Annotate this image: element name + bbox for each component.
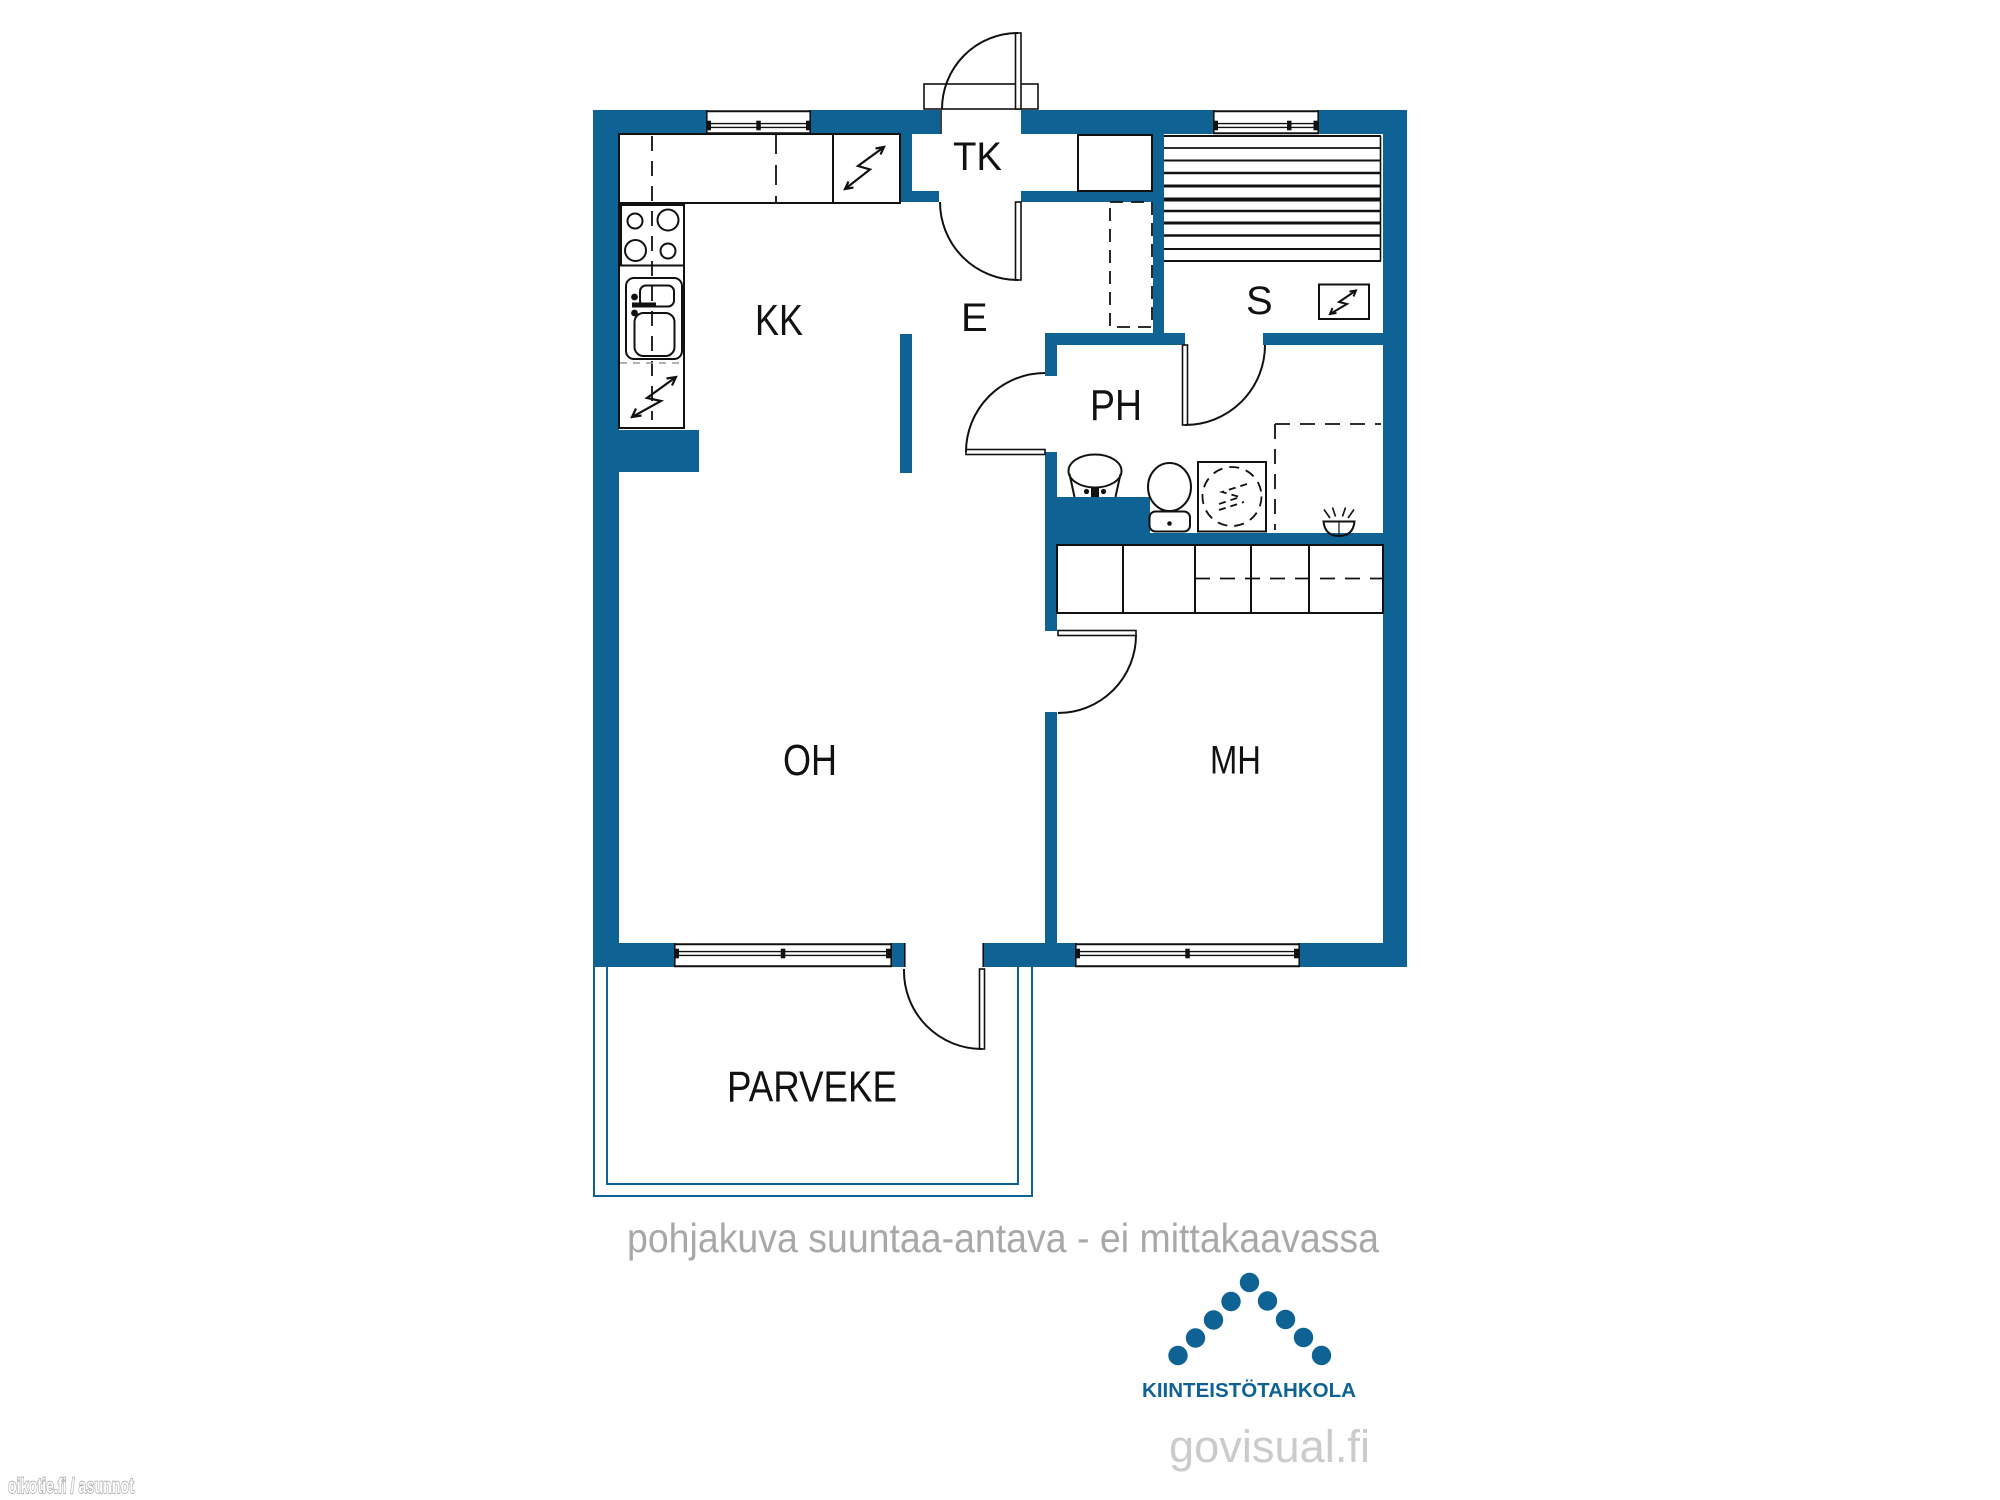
svg-text:KK: KK [755,296,803,345]
svg-text:KIINTEISTÖTAHKOLA: KIINTEISTÖTAHKOLA [1142,1379,1356,1402]
svg-text:E: E [961,296,988,340]
svg-text:MH: MH [1210,739,1261,783]
svg-text:OH: OH [783,736,837,785]
svg-text:govisual.fi: govisual.fi [1169,1421,1370,1472]
svg-text:S: S [1246,279,1273,323]
svg-text:TK: TK [953,135,1002,179]
svg-text:PH: PH [1090,381,1142,430]
svg-text:PARVEKE: PARVEKE [727,1063,897,1112]
svg-text:pohjakuva suuntaa-antava - ei: pohjakuva suuntaa-antava - ei mittakaava… [627,1215,1379,1261]
svg-text:oikotie.fi / asunnot: oikotie.fi / asunnot [8,1474,134,1498]
